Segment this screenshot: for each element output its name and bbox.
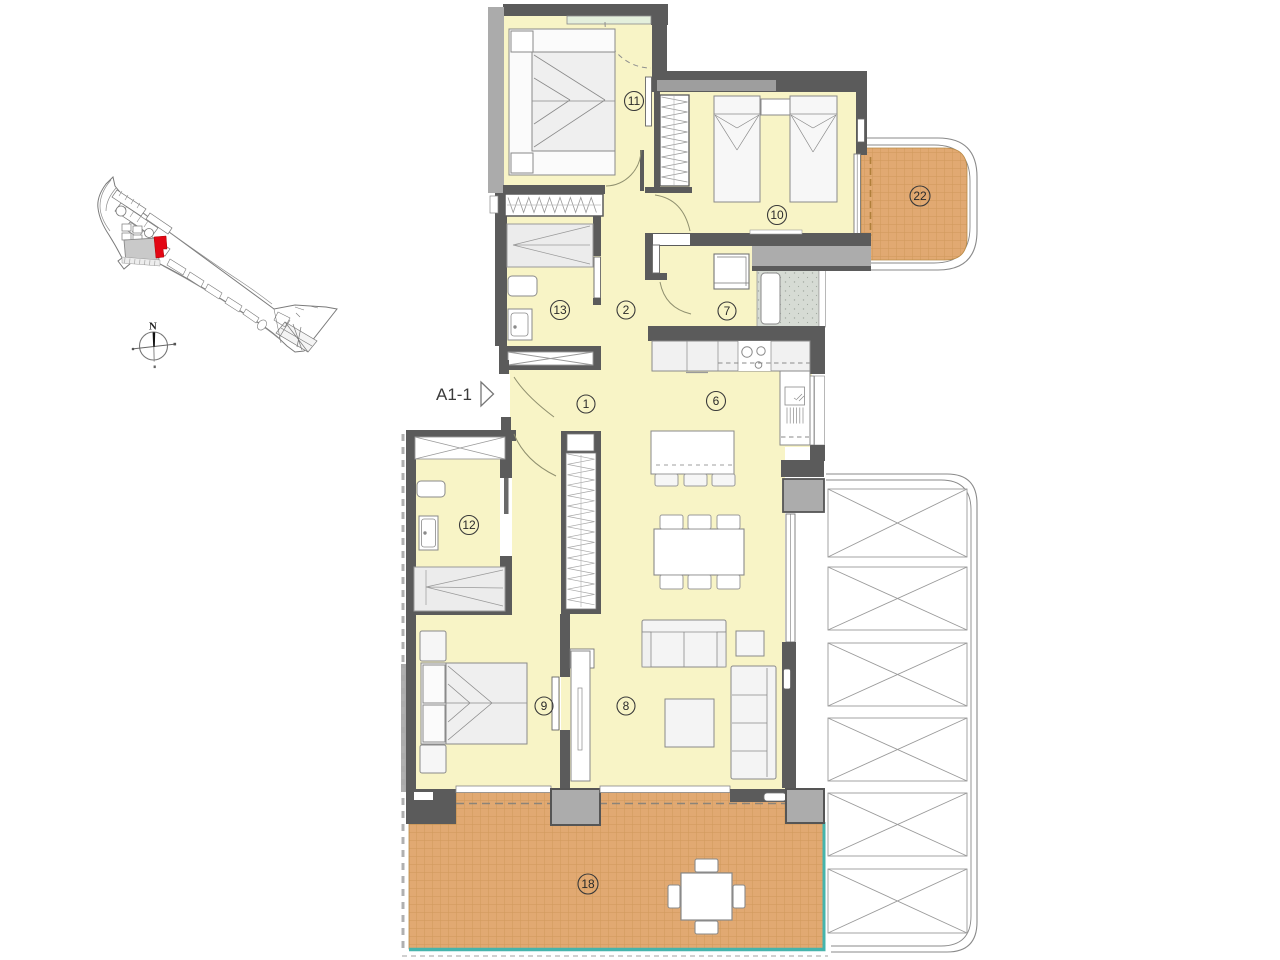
svg-text:8: 8 [623, 699, 630, 713]
svg-text:10: 10 [770, 208, 784, 222]
svg-text:13: 13 [553, 303, 567, 317]
svg-text:12: 12 [462, 518, 476, 532]
svg-text:1: 1 [583, 397, 590, 411]
svg-text:6: 6 [713, 394, 720, 408]
svg-text:N: N [149, 321, 157, 333]
svg-text:A1-1: A1-1 [436, 385, 472, 404]
svg-text:2: 2 [623, 303, 630, 317]
svg-text:22: 22 [913, 189, 927, 203]
svg-text:7: 7 [724, 304, 731, 318]
svg-text:18: 18 [581, 877, 595, 891]
svg-text:9: 9 [541, 699, 548, 713]
svg-text:11: 11 [628, 94, 641, 108]
